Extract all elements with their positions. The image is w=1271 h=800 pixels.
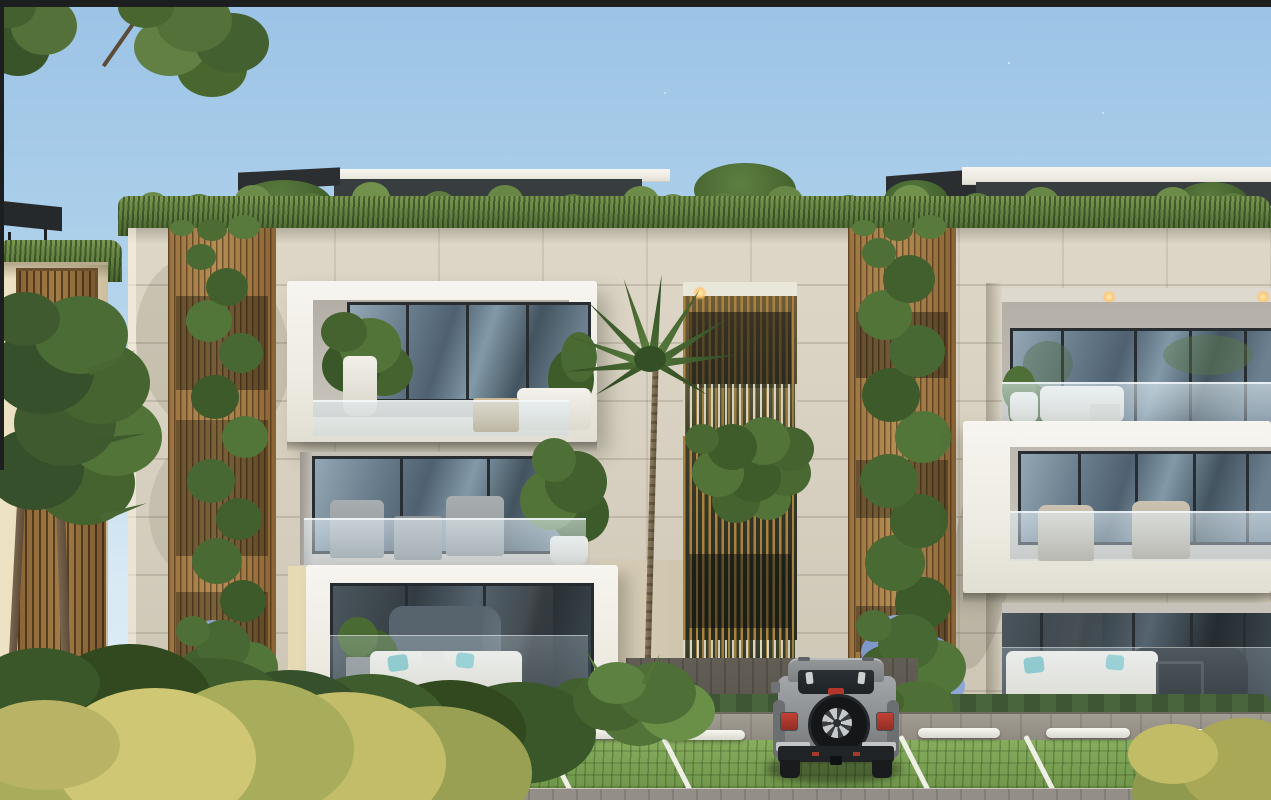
louver-opening [856, 312, 948, 378]
wheel-hub [833, 719, 841, 727]
roof-grass-overhang [170, 220, 194, 236]
drive-aisle-pavers [0, 788, 1271, 800]
facade-underroof-shadow [128, 228, 1271, 244]
taillight-right [876, 712, 894, 731]
balcony-box-top [287, 281, 597, 442]
rear-tire [780, 760, 800, 778]
image-left-border [0, 0, 4, 470]
louver-opening [176, 592, 268, 700]
wall-strip [1002, 603, 1271, 613]
sky-speck [1102, 112, 1104, 114]
climbing-vine-dense [862, 238, 896, 268]
glass-railing [1010, 511, 1271, 561]
wheel-stop [325, 729, 395, 739]
balcony-interior [313, 300, 569, 417]
glass-railing [1002, 382, 1271, 425]
roof-rail [862, 657, 874, 661]
plumbago-flowers [176, 616, 210, 646]
image-top-border [0, 0, 1271, 7]
balcony-recess-middle [300, 452, 590, 565]
window-mullion [406, 305, 409, 399]
window-mullion [466, 305, 469, 399]
wheel-stop [450, 729, 520, 739]
louver-opening [176, 296, 268, 390]
balcony-recess-top-right [1002, 302, 1271, 423]
side-mirror [771, 682, 780, 693]
bumper-reflector [812, 752, 819, 756]
louver-opening [856, 460, 948, 518]
palm-crown-center [634, 346, 666, 372]
center-palm-tree [560, 262, 760, 722]
facade-edge-highlight [128, 228, 136, 715]
balcony-interior [1010, 447, 1271, 559]
yellow-bush-foreground-right [1128, 724, 1218, 784]
neighbor-pergola [0, 201, 62, 232]
sliding-glass-door [347, 302, 591, 402]
taillight-left [780, 712, 798, 731]
roof-rail [798, 657, 810, 661]
louver-opening [176, 420, 268, 556]
suv-vehicle [756, 648, 912, 790]
grass-paver-parking [0, 740, 1271, 788]
glass-railing [330, 635, 588, 698]
roll-bar [805, 672, 813, 685]
architectural-rendering [0, 0, 1271, 800]
wheel-stop [918, 728, 1000, 738]
plumbago-flowers [856, 610, 892, 642]
wheel-stop [665, 730, 745, 740]
roll-bar [857, 672, 865, 685]
glass-railing [304, 518, 586, 567]
rear-tire [872, 760, 892, 778]
sky-speck [1008, 62, 1010, 64]
ficus-plant [321, 312, 367, 352]
wheel-stop [200, 729, 268, 739]
sky-speck [664, 92, 666, 94]
glass-railing [313, 400, 569, 436]
tow-hitch [830, 756, 842, 765]
window-mullion [526, 305, 529, 399]
roof-grass-overhang [852, 220, 876, 236]
tree-reflection [1163, 335, 1253, 375]
wheel-stop [1046, 728, 1130, 738]
balcony-box-middle-right [963, 421, 1271, 593]
bumper-reflector [853, 752, 860, 756]
right-wing-soffit [1002, 288, 1271, 302]
wheel-stop [578, 729, 644, 739]
box-undershadow [963, 593, 1271, 603]
climbing-vine [186, 244, 216, 270]
